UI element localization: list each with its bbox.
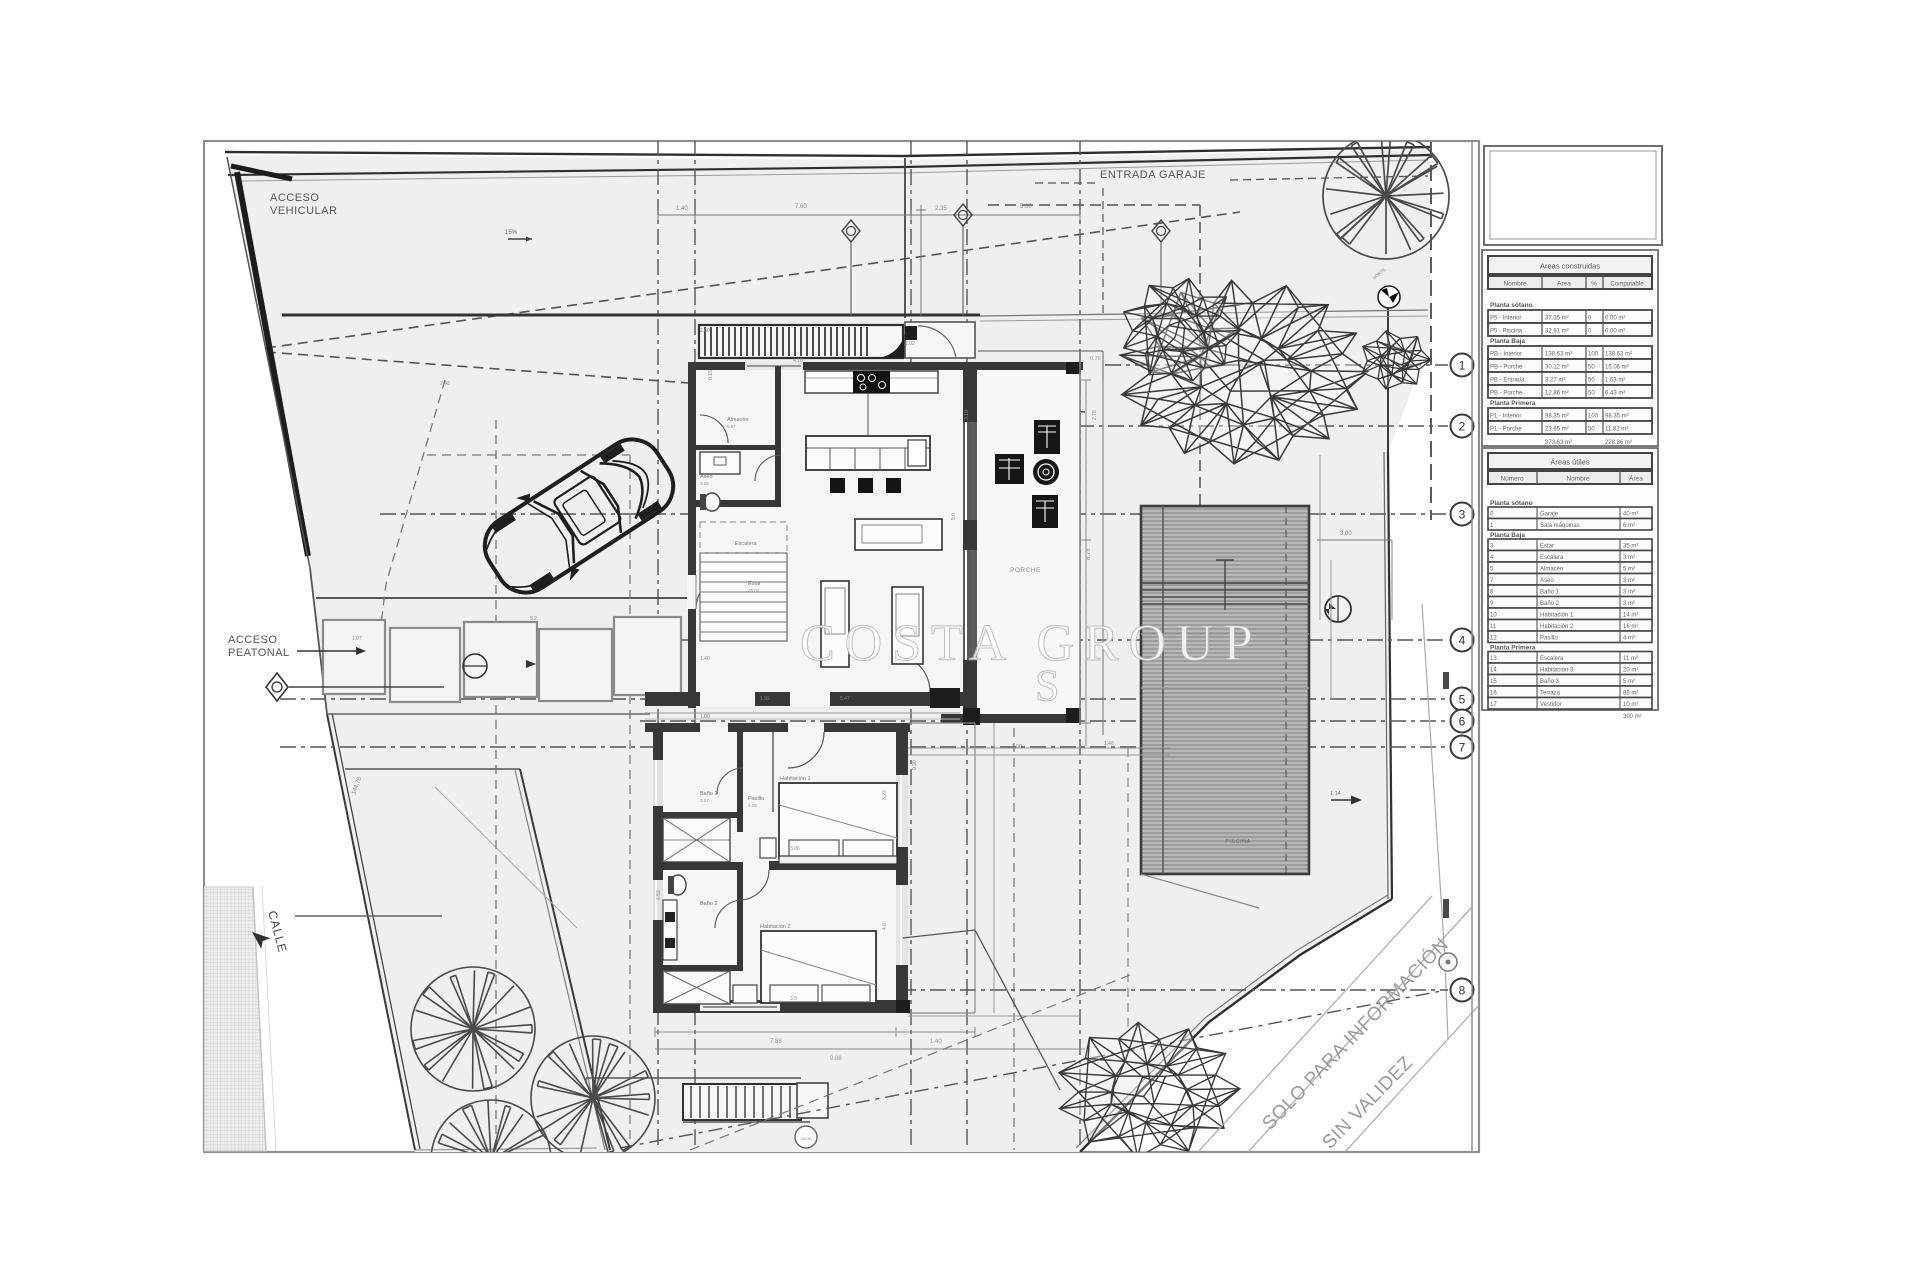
- svg-text:3.23: 3.23: [882, 790, 888, 800]
- svg-text:1.02: 1.02: [905, 341, 915, 347]
- svg-text:Aseo: Aseo: [700, 474, 713, 480]
- svg-text:16 m²: 16 m²: [1623, 624, 1638, 630]
- svg-text:Pasillo: Pasillo: [1540, 636, 1558, 642]
- svg-text:%: %: [1591, 281, 1597, 288]
- svg-text:12.86 m²: 12.86 m²: [1545, 391, 1569, 397]
- svg-text:ACCESO: ACCESO: [270, 192, 319, 204]
- svg-text:P5 - Piscina: P5 - Piscina: [1490, 329, 1523, 335]
- svg-text:Planta Primera: Planta Primera: [1490, 400, 1536, 407]
- svg-text:Areas construidas: Areas construidas: [1540, 262, 1600, 271]
- svg-text:3.10: 3.10: [964, 410, 970, 420]
- svg-text:0.90: 0.90: [912, 760, 918, 770]
- svg-text:138.63 m²: 138.63 m²: [1605, 352, 1632, 358]
- svg-text:228.86 m²: 228.86 m²: [1605, 440, 1632, 446]
- svg-text:32.91 m²: 32.91 m²: [1545, 329, 1569, 335]
- svg-text:4: 4: [1459, 634, 1466, 648]
- svg-text:1: 1: [1459, 359, 1466, 373]
- svg-text:16: 16: [1490, 691, 1497, 697]
- svg-text:138.63 m²: 138.63 m²: [1545, 352, 1572, 358]
- svg-text:3 m²: 3 m²: [1623, 590, 1635, 596]
- svg-text:5.47: 5.47: [840, 696, 850, 702]
- svg-text:325.80: 325.80: [801, 1137, 812, 1141]
- svg-text:3.07: 3.07: [700, 798, 709, 803]
- svg-text:VEHICULAR: VEHICULAR: [270, 205, 337, 217]
- svg-text:10: 10: [1490, 613, 1497, 619]
- svg-text:50: 50: [1588, 427, 1595, 433]
- svg-text:3.00: 3.00: [1012, 744, 1022, 750]
- svg-text:Número: Número: [1500, 476, 1524, 483]
- svg-text:0.00 m²: 0.00 m²: [1605, 329, 1625, 335]
- svg-text:35 m²: 35 m²: [1623, 544, 1638, 550]
- svg-text:12: 12: [1490, 636, 1497, 642]
- svg-text:30.12 m²: 30.12 m²: [1545, 365, 1569, 371]
- svg-text:P1 - Porche: P1 - Porche: [1490, 427, 1522, 433]
- svg-text:4.10: 4.10: [793, 358, 803, 364]
- svg-text:2.48: 2.48: [440, 381, 450, 387]
- svg-text:ACCESO: ACCESO: [228, 634, 277, 646]
- svg-text:Area: Area: [1557, 281, 1571, 288]
- svg-text:0.15: 0.15: [708, 370, 714, 380]
- svg-text:6.43 m²: 6.43 m²: [1605, 391, 1625, 397]
- svg-text:7.88: 7.88: [770, 1039, 782, 1045]
- svg-text:100: 100: [1588, 352, 1599, 358]
- svg-text:9.88: 9.88: [830, 1056, 842, 1062]
- svg-text:20 m²: 20 m²: [1623, 668, 1638, 674]
- svg-text:6: 6: [1459, 715, 1466, 729]
- svg-text:50: 50: [1588, 365, 1595, 371]
- svg-text:Garaje: Garaje: [1540, 512, 1559, 518]
- svg-text:S: S: [1035, 661, 1067, 710]
- svg-text:Habitación 2: Habitación 2: [760, 924, 791, 930]
- svg-text:Estar: Estar: [748, 581, 761, 587]
- svg-text:15: 15: [1490, 679, 1497, 685]
- svg-text:1.63 m²: 1.63 m²: [1605, 378, 1625, 384]
- svg-text:3.00: 3.00: [1340, 531, 1352, 537]
- svg-text:5.07: 5.07: [727, 424, 736, 429]
- svg-text:8.78: 8.78: [1086, 548, 1092, 560]
- svg-text:Almacén: Almacén: [727, 417, 748, 423]
- svg-text:13: 13: [1490, 656, 1497, 662]
- svg-text:PB - Porche: PB - Porche: [1490, 391, 1523, 397]
- svg-text:Habitación 1: Habitación 1: [780, 776, 811, 782]
- svg-text:Planta Primera: Planta Primera: [1490, 645, 1536, 652]
- svg-text:Habitación 2: Habitación 2: [1540, 624, 1574, 630]
- svg-text:98.35 m²: 98.35 m²: [1605, 414, 1629, 420]
- svg-text:Escalera: Escalera: [1540, 656, 1564, 662]
- svg-text:7.60: 7.60: [795, 204, 807, 210]
- svg-text:P1 - Interior: P1 - Interior: [1490, 414, 1521, 420]
- svg-text:100: 100: [1588, 414, 1599, 420]
- svg-text:Baño 1: Baño 1: [700, 791, 717, 797]
- svg-text:Planta Baja: Planta Baja: [1490, 532, 1525, 539]
- svg-text:3 m²: 3 m²: [1623, 555, 1635, 561]
- svg-text:Nombre: Nombre: [1503, 281, 1527, 288]
- svg-text:5 m²: 5 m²: [1623, 679, 1635, 685]
- svg-text:Escalera: Escalera: [735, 541, 757, 547]
- svg-text:Baño 3: Baño 3: [1540, 679, 1560, 685]
- svg-text:1.00: 1.00: [700, 714, 710, 720]
- svg-text:Computable: Computable: [1610, 281, 1644, 288]
- svg-text:Pasillo: Pasillo: [748, 796, 764, 802]
- svg-text:5.00: 5.00: [1020, 204, 1032, 210]
- svg-text:11.82 m²: 11.82 m²: [1605, 427, 1628, 433]
- svg-text:P5 - Interior: P5 - Interior: [1490, 316, 1521, 322]
- svg-text:Habitación 3: Habitación 3: [1540, 668, 1574, 674]
- svg-text:7: 7: [1459, 741, 1466, 755]
- svg-text:Planta Baja: Planta Baja: [1490, 338, 1525, 345]
- svg-text:1.07: 1.07: [352, 636, 362, 642]
- svg-text:4.6: 4.6: [882, 923, 888, 930]
- svg-text:6 m²: 6 m²: [1623, 523, 1635, 529]
- svg-text:Aseo: Aseo: [1540, 578, 1554, 584]
- svg-text:50: 50: [1588, 391, 1595, 397]
- svg-text:ENTRADA GARAJE: ENTRADA GARAJE: [1100, 169, 1206, 181]
- svg-text:4.53: 4.53: [656, 890, 662, 900]
- svg-text:PB - Entrada: PB - Entrada: [1490, 378, 1525, 384]
- svg-text:11 m²: 11 m²: [1623, 656, 1638, 662]
- svg-text:Habitación 1: Habitación 1: [1540, 613, 1574, 619]
- svg-text:Baño 1: Baño 1: [1540, 590, 1560, 596]
- svg-text:2: 2: [1459, 420, 1466, 434]
- svg-text:0.00 m²: 0.00 m²: [1605, 316, 1625, 322]
- svg-text:300 m²: 300 m²: [1623, 714, 1642, 720]
- svg-text:1.14: 1.14: [1330, 791, 1341, 797]
- svg-text:Área: Área: [1629, 474, 1643, 483]
- svg-text:14 m²: 14 m²: [1623, 613, 1638, 619]
- svg-text:15.06 m²: 15.06 m²: [1605, 365, 1629, 371]
- svg-text:3.05: 3.05: [700, 481, 709, 486]
- svg-text:PEATONAL: PEATONAL: [228, 647, 290, 659]
- svg-text:PORCHE: PORCHE: [1010, 567, 1041, 574]
- svg-text:PISCINA: PISCINA: [1225, 839, 1251, 845]
- svg-text:Escalera: Escalera: [1540, 555, 1564, 561]
- svg-text:Estar: Estar: [1540, 544, 1554, 550]
- svg-text:Terraza: Terraza: [1540, 691, 1561, 697]
- svg-text:40 m²: 40 m²: [1623, 512, 1638, 518]
- svg-text:1.40: 1.40: [930, 1039, 942, 1045]
- svg-text:3: 3: [1459, 508, 1466, 522]
- svg-text:14: 14: [1490, 668, 1497, 674]
- svg-text:3 m²: 3 m²: [1623, 578, 1635, 584]
- svg-text:10 m²: 10 m²: [1623, 702, 1638, 708]
- svg-text:8: 8: [1459, 984, 1466, 998]
- svg-text:86 m²: 86 m²: [1623, 691, 1638, 697]
- svg-text:Baño 2: Baño 2: [700, 901, 717, 907]
- svg-text:11: 11: [1490, 624, 1497, 630]
- svg-text:Nombre: Nombre: [1566, 476, 1590, 483]
- svg-text:1.92: 1.92: [760, 696, 770, 702]
- svg-text:3 m²: 3 m²: [1623, 601, 1635, 607]
- svg-text:373.63 m²: 373.63 m²: [1545, 440, 1572, 446]
- svg-text:4 m²: 4 m²: [1623, 636, 1635, 642]
- svg-text:35.07: 35.07: [748, 588, 760, 593]
- svg-text:17: 17: [1490, 702, 1497, 708]
- svg-text:5 m²: 5 m²: [1623, 567, 1635, 573]
- svg-text:1.46: 1.46: [1104, 741, 1114, 747]
- svg-text:Sala máquinas: Sala máquinas: [1540, 523, 1580, 529]
- svg-text:5.2: 5.2: [530, 616, 537, 622]
- svg-text:PB - Porche: PB - Porche: [1490, 365, 1523, 371]
- svg-text:Vestidor: Vestidor: [1540, 702, 1562, 708]
- svg-text:Planta sótano: Planta sótano: [1490, 302, 1533, 309]
- svg-text:3.5: 3.5: [790, 996, 797, 1002]
- svg-text:1.40: 1.40: [676, 206, 688, 212]
- svg-text:5.0: 5.0: [951, 513, 957, 520]
- svg-text:15%: 15%: [505, 230, 518, 236]
- svg-text:50: 50: [1588, 378, 1595, 384]
- svg-text:PB - Interior: PB - Interior: [1490, 352, 1522, 358]
- svg-text:1.40: 1.40: [700, 656, 710, 662]
- svg-text:Áreas útiles: Áreas útiles: [1550, 458, 1589, 467]
- svg-text:3.06: 3.06: [790, 846, 800, 852]
- svg-text:2.78: 2.78: [1092, 410, 1098, 420]
- svg-text:4.05: 4.05: [748, 803, 757, 808]
- svg-text:3.27 m²: 3.27 m²: [1545, 378, 1565, 384]
- svg-text:2.60: 2.60: [700, 328, 710, 334]
- svg-text:98.35 m²: 98.35 m²: [1545, 414, 1569, 420]
- svg-text:9.99: 9.99: [1200, 356, 1210, 362]
- svg-text:Almacén: Almacén: [1540, 567, 1563, 573]
- svg-text:2.35: 2.35: [935, 206, 947, 212]
- svg-text:Planta sótano: Planta sótano: [1490, 500, 1533, 507]
- svg-text:0.76: 0.76: [1090, 356, 1101, 362]
- svg-text:23.65 m²: 23.65 m²: [1545, 427, 1569, 433]
- svg-text:COSTA GROUP: COSTA GROUP: [800, 615, 1263, 672]
- svg-text:5: 5: [1459, 693, 1466, 707]
- svg-text:37.35 m²: 37.35 m²: [1545, 316, 1569, 322]
- svg-text:Baño 2: Baño 2: [1540, 601, 1560, 607]
